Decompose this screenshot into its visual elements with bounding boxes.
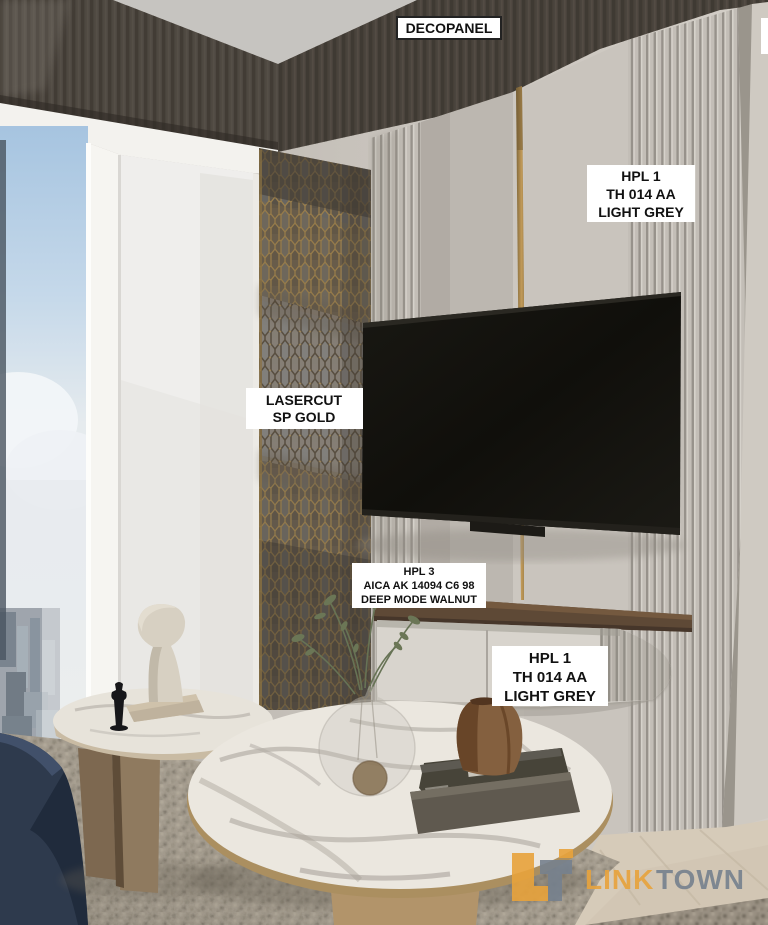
svg-text:HPL 3: HPL 3 xyxy=(404,566,435,578)
svg-text:HPL 1: HPL 1 xyxy=(621,168,661,184)
svg-text:HPL 1: HPL 1 xyxy=(529,650,571,667)
svg-text:LINK: LINK xyxy=(585,864,654,895)
svg-text:DEEP MODE WALNUT: DEEP MODE WALNUT xyxy=(361,594,477,606)
svg-text:LIGHT GREY: LIGHT GREY xyxy=(504,688,596,705)
svg-text:SP GOLD: SP GOLD xyxy=(273,409,336,425)
svg-text:LIGHT GREY: LIGHT GREY xyxy=(598,204,684,220)
svg-text:DECOPANEL: DECOPANEL xyxy=(406,20,493,36)
svg-text:TH 014 AA: TH 014 AA xyxy=(513,669,588,686)
svg-text:TH 014 AA: TH 014 AA xyxy=(606,186,676,202)
svg-text:AICA AK 14094 C6 98: AICA AK 14094 C6 98 xyxy=(363,580,474,592)
svg-text:TOWN: TOWN xyxy=(656,864,745,895)
svg-text:LASERCUT: LASERCUT xyxy=(266,392,343,408)
